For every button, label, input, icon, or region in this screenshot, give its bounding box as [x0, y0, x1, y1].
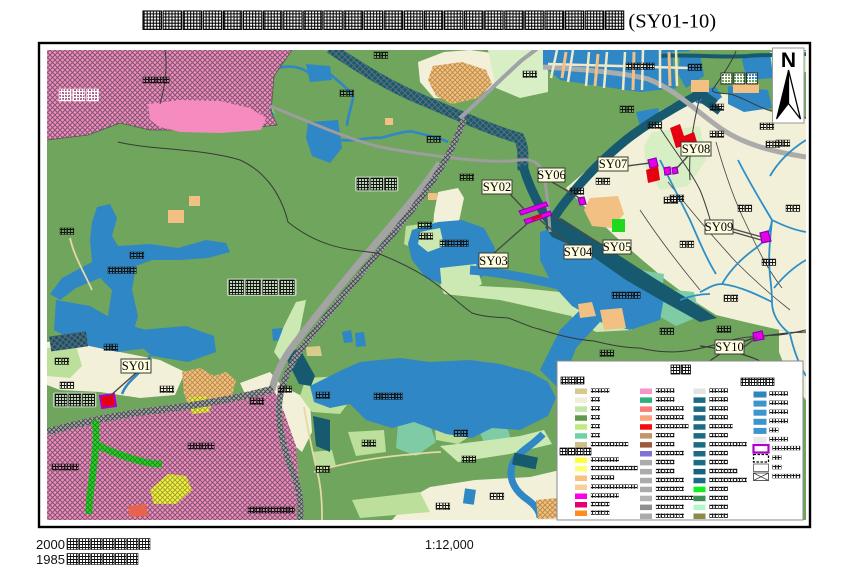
svg-text:2000: 2000: [36, 537, 65, 552]
svg-text:1985: 1985: [36, 552, 65, 567]
svg-text:1:12,000: 1:12,000: [425, 538, 474, 552]
